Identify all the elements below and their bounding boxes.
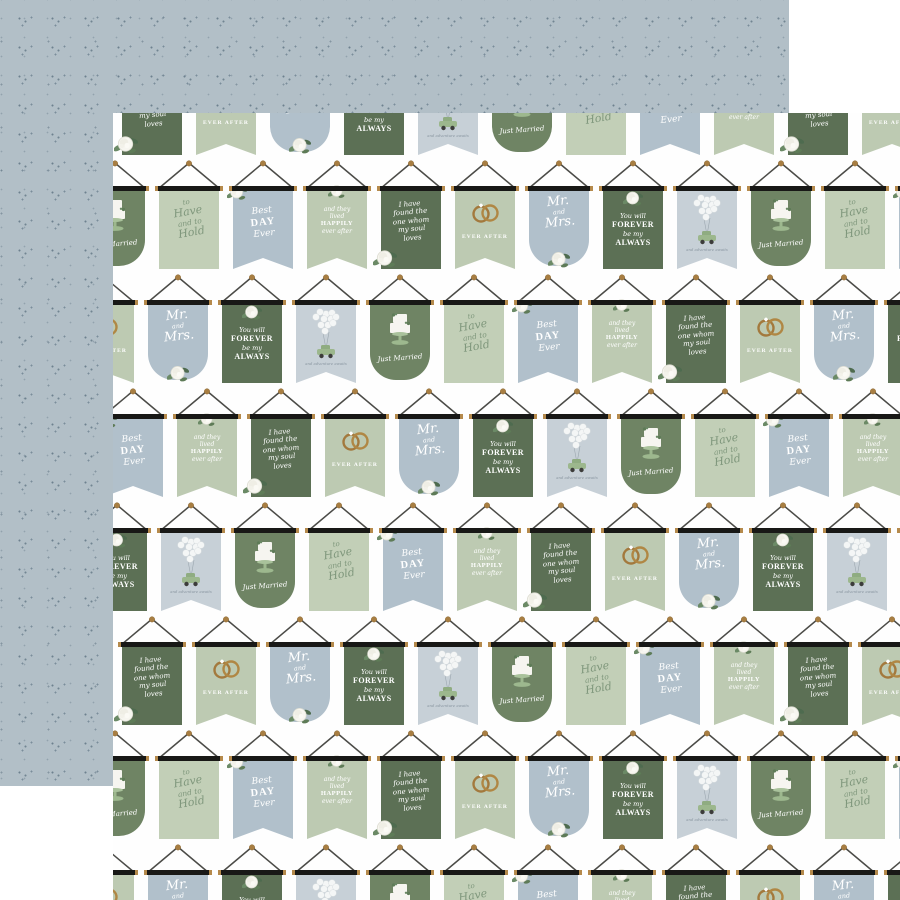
hanger-rod [858,642,900,647]
banner-ever-after-rings: EVER AFTER [855,616,900,738]
balloons-car-icon [306,876,346,900]
banner-text-line: and they [592,320,652,327]
banner-body: You willFOREVERbe myALWAYS [344,113,404,155]
white-rose-icon [893,752,900,772]
banner-text-line: be my [113,572,147,580]
hanger-rod [810,870,878,875]
banner-mr-and-mrs: Mr.andMrs. [807,274,881,396]
hanger-rod [617,414,685,419]
banner-have-and-hold: toHaveand toHold [152,160,226,282]
banner-mr-and-mrs: Mr.andMrs. [263,616,337,738]
hanger-rod [562,642,630,647]
banner-decoration [623,758,643,782]
banner-body: toHaveand toHold [825,190,885,269]
banner-balloons-car: and adventure awaits [540,388,614,510]
banner-balloons-car: and adventure awaits [289,274,363,396]
white-rose-icon [242,872,262,892]
banner-text-line: FOREVER [603,790,663,800]
hanger-rod [340,642,408,647]
banner-balloons-car: and adventure awaits [289,844,363,900]
hanger-rod [305,528,373,533]
white-rose-icon [328,752,346,770]
hanger-rod [673,186,741,191]
hanger-rod [113,870,138,875]
hanger-rod [675,528,743,533]
banner-cake-just-married: Just Married [744,730,818,852]
banner-decoration [658,360,682,388]
banner-text-line: be my [222,344,282,352]
banner-body: toHaveand toHold [159,760,219,839]
banner-have-and-hold: toHaveand toHold [818,160,892,282]
hanger-rod [292,300,360,305]
banner-text: You willFOREVERbe myALWAYS [888,896,900,900]
banner-have-and-hold: toHaveand toHold [437,844,511,900]
hanger-rod [747,756,815,761]
white-rose-icon [242,302,262,322]
banner-row: I havefound theone whommy soullovesEVER … [113,616,900,738]
banner-row: Just MarriedtoHaveand toHoldBestDAYEvera… [113,160,900,282]
banner-text-line: be my [603,800,663,808]
wedding-cake-icon [247,536,283,580]
banner-text-line: You will [344,668,404,676]
banner-decoration [504,113,540,128]
hanger-rod [736,300,804,305]
banner-text-line: You will [222,896,282,900]
banner-decoration [113,194,133,242]
banner-text-line: EVER AFTER [455,234,515,241]
banner-soul-loves: I havefound theone whommy soulloves [781,616,855,738]
banner-text-line: and they [307,776,367,783]
banner-decoration [468,770,502,800]
banner-text-line: be my [603,230,663,238]
banner-decoration [113,530,127,554]
white-rose-icon [523,588,547,612]
banner-decoration [289,134,311,160]
banner-decoration [306,876,346,900]
banner-ever-after-rings: EVER AFTER [113,274,141,396]
banner-text-line: You will [222,326,282,334]
banner-text: BestDAYEver [231,203,294,243]
hanger-rod [192,642,260,647]
banner-decoration [382,308,418,356]
hanger-rod [173,414,241,419]
banner-mr-and-mrs: Mr.andMrs. [522,160,596,282]
banner-mr-and-mrs: Mr.andMrs. [807,844,881,900]
banner-text: I havefound theone whommy soulloves [249,425,312,472]
wedding-rings-icon [113,314,121,340]
banner-text: BestDAYEver [231,773,294,813]
hanger-rod [749,528,817,533]
banner-balloons-car: and adventure awaits [670,160,744,282]
hanger-rod [821,756,889,761]
balloons-car-icon [428,648,468,704]
banner-text-line: HAPPILY [307,220,367,228]
hanger-rod [784,642,852,647]
banner-body: Mr.andMrs. [148,874,208,900]
white-rose-icon [373,246,397,270]
banner-text-line: be my [344,686,404,694]
banner-text-line: ever after [592,342,652,349]
banner-mr-and-mrs: Mr.andMrs. [392,388,466,510]
banner-row: EVER AFTERMr.andMrs.You willFOREVERbe my… [113,274,900,396]
banner-text: Mr.andMrs. [677,534,740,574]
banner-text: I havefound theone whommy soulloves [379,767,442,814]
banner-text: EVER AFTER [196,690,256,697]
banner-text: EVER AFTER [862,690,900,697]
banner-text: EVER AFTER [325,462,385,469]
banner-happily-ever-after: and theylivedHAPPILYever after [707,616,781,738]
banner-text: Mr.andMrs. [527,192,590,232]
banner-best-day-ever: BestDAYEver [892,160,900,282]
white-rose-icon [780,132,804,156]
banner-text: and theylivedHAPPILYever after [843,434,900,464]
banner-text-line: HAPPILY [714,676,774,684]
banner-best-day-ever: BestDAYEver [376,502,450,624]
banner-best-day-ever: BestDAYEver [892,730,900,852]
hanger-rod [440,300,508,305]
banner-mr-and-mrs: Mr.andMrs. [141,274,215,396]
banner-body: and theylivedHAPPILYever after [714,113,774,155]
banner-row: EVER AFTERMr.andMrs.You willFOREVERbe my… [113,844,900,900]
banner-forever-always: You willFOREVERbe myALWAYS [881,274,900,396]
banner-forever-always: You willFOREVERbe myALWAYS [881,844,900,900]
hanger-rod [229,186,297,191]
banner-body: toHaveand toHold [159,190,219,269]
banner-text: EVER AFTER [113,348,134,355]
banner-decoration [242,302,262,326]
wedding-rings-icon [113,884,121,900]
banner-text: I havefound theone whommy soulloves [120,653,183,700]
banner-text: You willFOREVERbe myALWAYS [888,326,900,362]
banner-balloons-car: and adventure awaits [411,616,485,738]
banner-happily-ever-after: and theylivedHAPPILYever after [300,160,374,282]
banner-text-line: EVER AFTER [455,804,515,811]
banner-decoration [523,588,547,616]
white-rose-icon [613,296,631,314]
banner-text-line: HAPPILY [177,448,237,456]
banner-text-line: lived [307,213,367,220]
wedding-rings-icon [209,656,243,682]
hanger-rod [673,756,741,761]
banner-decoration [171,534,211,594]
banner-text: toHaveand toHold [563,113,629,129]
banner-text-line: and they [843,434,900,441]
wedding-cake-icon [763,194,799,238]
hanger-rod [514,870,582,875]
balloons-car-icon [428,113,468,134]
hanger-rod [229,756,297,761]
banner-text: EVER AFTER [455,804,515,811]
hanger-rod [821,186,889,191]
banner-text-line: EVER AFTER [740,348,800,355]
banner-decoration [113,764,133,812]
hanger-rod [488,642,556,647]
banner-decoration [289,704,311,730]
wedding-rings-icon [753,884,787,900]
banner-happily-ever-after: and theylivedHAPPILYever after [836,388,900,510]
banner-happily-ever-after: and theylivedHAPPILYever after [450,502,524,624]
banner-decoration [428,648,468,708]
balloons-car-icon [687,192,727,248]
banner-decoration [504,650,540,698]
banner-text-line: FOREVER [888,334,900,344]
banner-ever-after-rings: EVER AFTER [318,388,392,510]
banner-happily-ever-after: and theylivedHAPPILYever after [300,730,374,852]
banner-text-line: ALWAYS [473,466,533,476]
hanger-rod [113,528,151,533]
banner-text: Mr.andMrs. [527,762,590,802]
banner-text-line: FOREVER [344,676,404,686]
banner-decoration [364,644,384,668]
banner-body: toHaveand toHold [444,304,504,383]
white-rose-icon [512,866,532,886]
hanger-rod [636,642,704,647]
banner-body: EVER AFTER [862,113,900,155]
banner-text: and theylivedHAPPILYever after [307,776,367,806]
banner-text: BestDAYEver [638,659,701,699]
white-rose-icon [780,702,804,726]
hanger-rod [218,300,286,305]
white-rose-icon [373,816,397,840]
banner-have-and-hold: toHaveand toHold [688,388,762,510]
banner-row: BestDAYEverand theylivedHAPPILYever afte… [113,388,900,510]
white-rose-icon [289,134,311,156]
banner-mr-and-mrs: Mr.andMrs. [522,730,596,852]
hanger-rod [231,528,299,533]
banner-forever-always: You willFOREVERbe myALWAYS [215,274,289,396]
banner-text-line: ALWAYS [753,580,813,590]
banner-text-line: ALWAYS [113,580,147,590]
banner-text-line: ALWAYS [603,808,663,818]
banner-body: toHaveand toHold [695,418,755,497]
banner-text-line: HAPPILY [843,448,900,456]
white-rose-icon [377,524,397,544]
banner-text-line: EVER AFTER [196,120,256,127]
hanger-rod [810,300,878,305]
banner-forever-always: You willFOREVERbe myALWAYS [466,388,540,510]
wedding-rings-icon [753,314,787,340]
banner-text: toHaveand toHold [822,763,888,813]
banner-decoration [875,113,900,116]
hanger-rod [157,528,225,533]
banner-text-line: EVER AFTER [862,120,900,127]
banner-soul-loves: I havefound theone whommy soulloves [659,844,733,900]
banner-text: You willFOREVERbe myALWAYS [603,212,663,248]
white-rose-icon [227,182,247,202]
hanger-rod [895,186,900,191]
banner-decoration [113,884,121,900]
front-sheet-banner-paper: I havefound theone whommy soullovesEVER … [113,113,900,900]
banner-body: toHaveand toHold [309,532,369,611]
banner-text: BestDAYEver [381,545,444,585]
hanger-rod [747,186,815,191]
white-rose-icon [227,752,247,772]
banner-decoration [243,474,267,502]
banner-decoration [833,362,855,388]
banner-ever-after-rings: EVER AFTER [113,844,141,900]
hanger-rod [366,300,434,305]
banner-soul-loves: I havefound theone whommy soulloves [374,160,448,282]
banner-text: You willFOREVERbe myALWAYS [603,782,663,818]
banner-mr-and-mrs: Mr.andMrs. [141,844,215,900]
banner-text: and theylivedHAPPILYever after [592,320,652,350]
banner-text: BestDAYEver [767,431,830,471]
banner-cake-just-married: Just Married [744,160,818,282]
white-rose-icon [478,524,496,542]
banner-ever-after-rings: EVER AFTER [733,274,807,396]
banner-text: I havefound theone whommy soulloves [664,881,727,900]
banner-text: and theylivedHAPPILYever after [457,548,517,578]
banner-forever-always: You willFOREVERbe myALWAYS [113,502,154,624]
banner-text-line: You will [473,440,533,448]
banner-text: BestDAYEver [638,113,701,129]
banner-forever-always: You willFOREVERbe myALWAYS [746,502,820,624]
banner-text: toHaveand toHold [156,763,222,813]
banner-decoration [687,762,727,822]
hanger-rod [765,414,833,419]
banner-text: You willFOREVERbe myALWAYS [113,554,147,590]
banner-text: Mr.andMrs. [812,876,875,900]
white-rose-icon [167,362,189,384]
banner-decoration [382,878,418,900]
banner-decoration [780,132,804,160]
banner-happily-ever-after: and theylivedHAPPILYever after [170,388,244,510]
banner-text-line: ever after [177,456,237,463]
banner-decoration [557,420,597,480]
banner-body: BestDAYEver [113,418,163,497]
banner-decoration [687,192,727,252]
hanger-rod [691,414,759,419]
banner-cake-just-married: Just Married [894,502,900,624]
banner-text: You willFOREVERbe myALWAYS [222,896,282,900]
hanger-rod [113,756,149,761]
banner-soul-loves: I havefound theone whommy soulloves [659,274,733,396]
banner-decoration [242,872,262,896]
banner-forever-always: You willFOREVERbe myALWAYS [337,616,411,738]
white-rose-icon [243,474,267,498]
banner-text: I havefound theone whommy soulloves [786,653,849,700]
banner-text-line: be my [753,572,813,580]
wedding-cake-icon [504,650,540,694]
banner-text-line: and they [592,890,652,897]
banner-ever-after-rings: EVER AFTER [733,844,807,900]
banner-body: BestDAYEver [640,113,700,155]
banner-text-line: FOREVER [222,334,282,344]
white-rose-icon [114,702,138,726]
banner-decoration [633,422,669,470]
banner-row: Just MarriedtoHaveand toHoldBestDAYEvera… [113,730,900,852]
banner-best-day-ever: BestDAYEver [511,274,585,396]
wedding-cake-icon [763,764,799,808]
banner-text: I havefound theone whommy soulloves [664,311,727,358]
banner-text: and theylivedHAPPILYever after [307,206,367,236]
banner-text: toHaveand toHold [306,535,372,585]
banner-text-line: You will [603,212,663,220]
banner-text-line: You will [753,554,813,562]
banner-soul-loves: I havefound theone whommy soulloves [244,388,318,510]
hanger-rod [451,756,519,761]
banner-body: toHaveand toHold [825,760,885,839]
white-rose-icon [548,818,570,840]
banner-text: EVER AFTER [740,348,800,355]
banner-cake-just-married: Just Married [363,844,437,900]
hanger-rod [895,756,900,761]
banner-decoration [698,590,720,616]
banner-decoration [493,416,513,440]
banner-cake-just-married: Just Married [363,274,437,396]
banner-decoration [306,306,346,366]
white-rose-icon [418,476,440,498]
banner-text-line: and they [307,206,367,213]
balloons-car-icon [837,534,877,590]
hanger-rod [440,870,508,875]
banner-text-line: EVER AFTER [196,690,256,697]
hanger-rod [266,642,334,647]
banner-text-line: ALWAYS [222,352,282,362]
white-rose-icon [364,644,384,664]
banner-text: toHaveand toHold [822,193,888,243]
hanger-rod [321,414,389,419]
wedding-cake-icon [633,422,669,466]
banner-cake-just-married: Just Married [113,160,152,282]
banner-text: EVER AFTER [862,120,900,127]
banner-decoration [753,884,787,900]
banner-happily-ever-after: and theylivedHAPPILYever after [585,844,659,900]
banner-text: You willFOREVERbe myALWAYS [222,326,282,362]
wedding-cake-icon [382,308,418,352]
banner-text-line: You will [888,326,900,334]
white-rose-icon [493,416,513,436]
hanger-rod [527,528,595,533]
banner-text-line: ever after [457,570,517,577]
banner-balloons-car: and adventure awaits [154,502,228,624]
banner-decoration [338,428,372,458]
wedding-rings-icon [468,200,502,226]
banner-text: You willFOREVERbe myALWAYS [344,668,404,704]
banner-cake-just-married: Just Married [485,616,559,738]
scrapbook-paper-product-image: I havefound theone whommy soullovesEVER … [0,0,900,900]
banner-decoration [373,816,397,844]
banner-text: Mr.andMrs. [812,306,875,346]
white-rose-icon [763,410,783,430]
banner-decoration [763,194,799,242]
wedding-cake-icon [113,194,133,238]
white-rose-icon [735,638,753,656]
hanger-rod [543,414,611,419]
banner-body: toHaveand toHold [444,874,504,900]
white-rose-icon [289,704,311,726]
banner-decoration [468,200,502,230]
hanger-rod [379,528,447,533]
white-rose-icon [512,296,532,316]
white-rose-icon [634,638,654,658]
banner-decoration [780,702,804,730]
white-rose-icon [113,530,127,550]
balloons-car-icon [171,534,211,590]
banner-forever-always: You willFOREVERbe myALWAYS [596,160,670,282]
banner-body: toHaveand toHold [566,113,626,155]
hanger-rod [662,300,730,305]
banner-best-day-ever: BestDAYEver [226,730,300,852]
wedding-rings-icon [338,428,372,454]
banner-body: toHaveand toHold [566,646,626,725]
banner-text-line: be my [888,344,900,352]
hanger-rod [525,756,593,761]
banner-decoration [618,542,652,572]
banner-text: toHaveand toHold [692,421,758,471]
banner-balloons-car: and adventure awaits [670,730,744,852]
banner-text-line: FOREVER [473,448,533,458]
